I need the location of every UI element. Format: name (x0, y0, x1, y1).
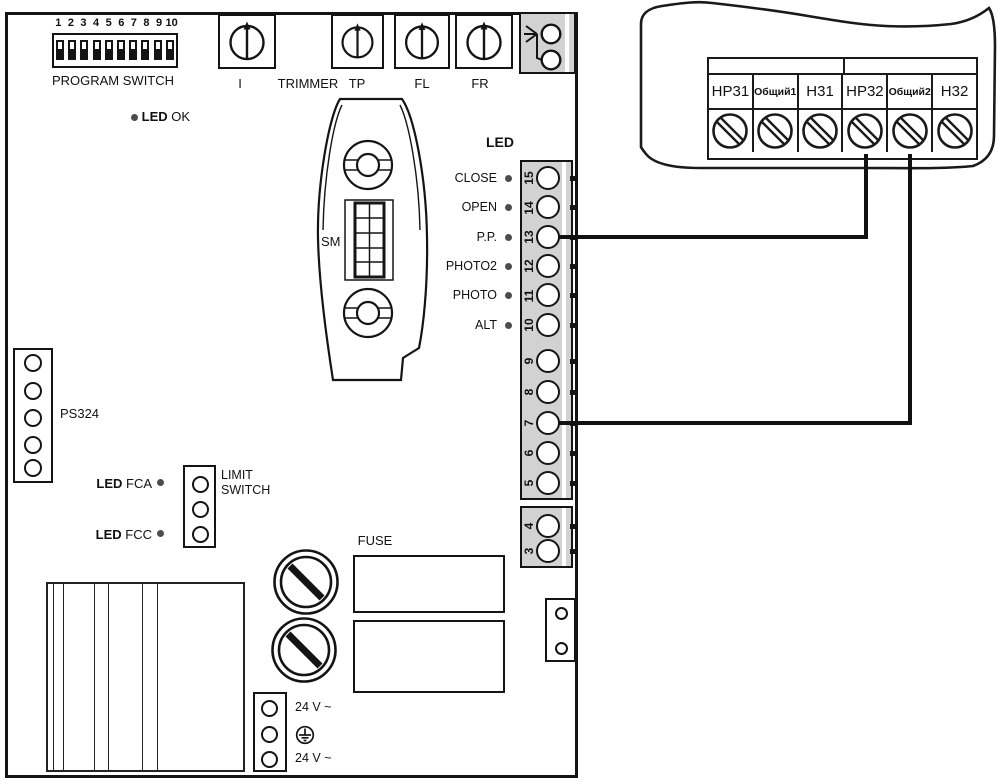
screw-icon (845, 111, 885, 151)
trimmer-label: TRIMMER (273, 76, 343, 91)
dip-number: 10 (165, 17, 178, 29)
screw-icon (890, 111, 930, 151)
terminal-6 (536, 441, 560, 465)
terminal-15 (536, 166, 560, 190)
led-fcc-dot (157, 530, 164, 537)
antenna-terminal-block (519, 12, 576, 74)
terminal-number: 5 (521, 475, 537, 491)
led-alt-dot (505, 322, 512, 329)
terminal-tick (570, 235, 577, 240)
fuses (265, 540, 350, 690)
terminal-number: 6 (521, 445, 537, 461)
receiver-terminal-label: Общий2 (888, 75, 933, 108)
terminal-tick (570, 323, 577, 328)
terminal-5 (536, 471, 560, 495)
terminal-tick (570, 176, 577, 181)
led-close-dot (505, 175, 512, 182)
ps324-pin (24, 382, 42, 400)
led-ok-led-label: LED (142, 109, 168, 124)
terminal-7 (536, 411, 560, 435)
terminal-10 (536, 313, 560, 337)
ps324-pin (24, 436, 42, 454)
terminal-tick (570, 390, 577, 395)
dip-number: 4 (90, 17, 103, 29)
dip-number: 2 (65, 17, 78, 29)
trimmer-fl (394, 14, 450, 69)
power-pin (261, 700, 278, 717)
fuse-label: FUSE (350, 533, 400, 548)
receiver-terminal-label: НР32 (843, 75, 888, 108)
ps324-pin (24, 354, 42, 372)
potentiometer-icon (220, 16, 274, 67)
receiver-terminal-label: Н31 (799, 75, 844, 108)
relay-1 (353, 555, 505, 613)
dip-slot (56, 40, 64, 60)
dip-numbers: 1 2 3 4 5 6 7 8 9 10 (52, 17, 178, 29)
led-label-pp: P.P. (390, 230, 497, 244)
trimmer-fr (455, 14, 513, 69)
terminal-14 (536, 195, 560, 219)
led-photo-dot (505, 292, 512, 299)
led-label-open: OPEN (390, 200, 497, 214)
terminal-4 (536, 514, 560, 538)
screw-icon (935, 111, 975, 151)
trimmer-tp-label: TP (344, 76, 370, 91)
led-open-dot (505, 204, 512, 211)
terminal-12 (536, 254, 560, 278)
limit-switch-label: LIMIT SWITCH (221, 468, 270, 498)
led-ok-dot (131, 114, 138, 121)
potentiometer-icon (457, 16, 511, 67)
terminal-3 (536, 539, 560, 563)
limit-label-line1: LIMIT (221, 468, 270, 483)
aux-connector-pin (555, 607, 568, 620)
transformer (46, 582, 245, 772)
sm-label: SM (321, 234, 341, 249)
terminal-tick (570, 359, 577, 364)
led-label-photo: PHOTO (390, 288, 497, 302)
dip-number: 5 (102, 17, 115, 29)
led-label-photo2: PHOTO2 (390, 259, 497, 273)
led-fca-name: FCA (126, 476, 152, 491)
receiver-terminal-label: НР31 (709, 75, 754, 108)
dip-number: 8 (140, 17, 153, 29)
dip-number: 1 (52, 17, 65, 29)
trimmer-tp (331, 14, 384, 69)
terminal-number: 10 (521, 317, 537, 333)
terminal-number: 7 (521, 415, 537, 431)
limit-switch-pin (192, 526, 209, 543)
terminal-tick (570, 524, 577, 529)
trimmer-i (218, 14, 276, 69)
led-photo2-dot (505, 263, 512, 270)
led-fca-indicator: LED FCA (60, 476, 152, 491)
terminal-number: 13 (521, 229, 537, 245)
relay-2 (353, 620, 505, 693)
screw-terminal (933, 110, 976, 152)
dip-number: 7 (128, 17, 141, 29)
terminal-8 (536, 380, 560, 404)
receiver-label-row: НР31 Общий1 Н31 НР32 Общий2 Н32 (709, 75, 976, 110)
trimmer-fr-label: FR (467, 76, 493, 91)
led-ok-indicator: LED OK (131, 109, 190, 124)
dip-slot (141, 40, 149, 60)
screw-terminal (754, 110, 799, 152)
power-pin (261, 726, 278, 743)
dip-slot (117, 40, 125, 60)
terminal-tick (570, 293, 577, 298)
terminal-tick (570, 481, 577, 486)
trimmer-fl-label: FL (409, 76, 435, 91)
terminal-9 (536, 349, 560, 373)
receiver-terminal-label: Н32 (933, 75, 976, 108)
dip-slot (166, 40, 174, 60)
led-label-alt: ALT (390, 318, 497, 332)
limit-switch-pin (192, 501, 209, 518)
program-switch-label: PROGRAM SWITCH (40, 73, 186, 88)
led-fca-led-label: LED (96, 476, 122, 491)
terminal-11 (536, 283, 560, 307)
dip-slot (154, 40, 162, 60)
terminal-number: 12 (521, 258, 537, 274)
dip-slot (105, 40, 113, 60)
receiver-header-row (709, 59, 976, 75)
antenna-icon (521, 14, 573, 71)
screw-terminal (799, 110, 844, 152)
terminal-tick (570, 421, 577, 426)
fuse-2 (273, 619, 336, 682)
aux-connector-pin (555, 642, 568, 655)
dip-number: 6 (115, 17, 128, 29)
led-panel-title: LED (470, 134, 530, 150)
terminal-number: 4 (521, 518, 537, 534)
earth-ground-icon (295, 725, 315, 745)
limit-label-line2: SWITCH (221, 483, 270, 498)
screw-terminal (709, 110, 754, 152)
terminal-number: 9 (521, 353, 537, 369)
receiver-screw-row (709, 110, 976, 152)
transformer-stripe (142, 584, 158, 770)
terminal-number: 8 (521, 384, 537, 400)
receiver-terminal-block: НР31 Общий1 Н31 НР32 Общий2 Н32 (707, 57, 978, 160)
screw-icon (710, 111, 750, 151)
fuse-1 (275, 551, 338, 614)
dip-number: 9 (153, 17, 166, 29)
transformer-stripe (53, 584, 64, 770)
led-fcc-led-label: LED (96, 527, 122, 542)
potentiometer-icon (333, 16, 382, 67)
led-pp-dot (505, 234, 512, 241)
screw-icon (800, 111, 840, 151)
terminal-tick (570, 264, 577, 269)
ps324-pin (24, 409, 42, 427)
ps324-label: PS324 (60, 406, 99, 421)
power-label-top: 24 V ~ (295, 700, 332, 714)
dip-slot (129, 40, 137, 60)
trimmer-i-label: I (230, 76, 250, 91)
terminal-tick (570, 451, 577, 456)
screw-terminal-common2 (888, 110, 933, 152)
led-label-close: CLOSE (390, 171, 497, 185)
terminal-tick (570, 205, 577, 210)
dip-switch (52, 33, 178, 68)
terminal-13 (536, 225, 560, 249)
power-label-bottom: 24 V ~ (295, 751, 332, 765)
led-fca-dot (157, 479, 164, 486)
transformer-stripe (94, 584, 109, 770)
led-ok-name: OK (171, 109, 190, 124)
dip-slot (93, 40, 101, 60)
screw-icon (755, 111, 795, 151)
limit-switch-pin (192, 476, 209, 493)
dip-slot (80, 40, 88, 60)
terminal-number: 11 (521, 288, 537, 304)
terminal-number: 15 (521, 170, 537, 186)
led-fcc-indicator: LED FCC (60, 527, 152, 542)
terminal-number: 3 (521, 543, 537, 559)
wiring-diagram: 1 2 3 4 5 6 7 8 9 10 PROGRAM SWITCH (0, 0, 1000, 784)
dip-number: 3 (77, 17, 90, 29)
screw-terminal-np32 (843, 110, 888, 152)
receiver-terminal-label: Общий1 (754, 75, 799, 108)
dip-slot (68, 40, 76, 60)
power-pin (261, 751, 278, 768)
ps324-pin (24, 459, 42, 477)
led-fcc-name: FCC (125, 527, 152, 542)
header-divider (843, 59, 846, 73)
terminal-tick (570, 549, 577, 554)
terminal-number: 14 (521, 200, 537, 216)
potentiometer-icon (396, 16, 448, 67)
